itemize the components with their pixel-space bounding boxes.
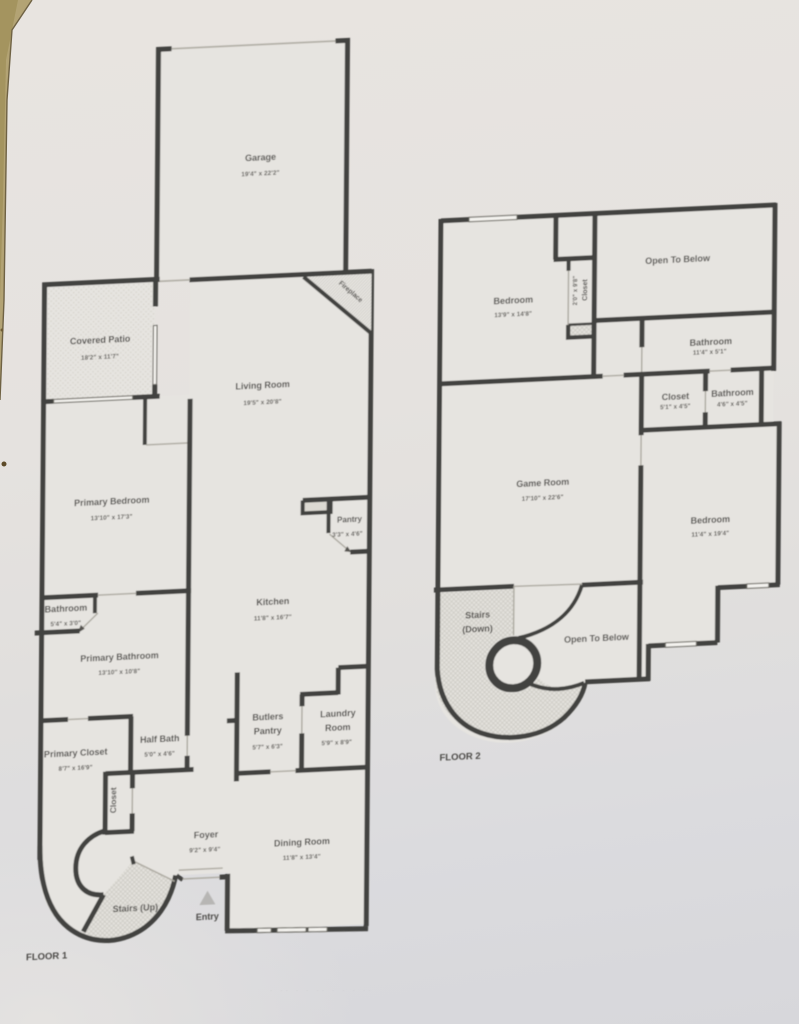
svg-text:Bedroom: Bedroom — [691, 514, 731, 526]
svg-text:Pantry: Pantry — [254, 725, 282, 736]
svg-text:9'2" x 9'4": 9'2" x 9'4" — [189, 846, 220, 854]
svg-text:2'0" x 9'8": 2'0" x 9'8" — [573, 275, 579, 305]
svg-text:4'6" x 4'5": 4'6" x 4'5" — [717, 400, 748, 408]
svg-text:5'0" x 4'6": 5'0" x 4'6" — [144, 750, 175, 758]
svg-text:5'4" x 3'0": 5'4" x 3'0" — [50, 620, 81, 628]
svg-text:Stairs: Stairs — [465, 609, 490, 620]
svg-text:3'3" x 4'6": 3'3" x 4'6" — [332, 531, 363, 539]
svg-text:Half Bath: Half Bath — [140, 733, 180, 745]
svg-text:FLOOR 1: FLOOR 1 — [26, 950, 68, 963]
svg-text:Entry: Entry — [196, 911, 219, 922]
svg-text:Closet: Closet — [662, 391, 690, 402]
svg-text:5'1" x 4'5": 5'1" x 4'5" — [660, 403, 691, 411]
svg-text:Bedroom: Bedroom — [494, 295, 534, 307]
svg-text:Butlers: Butlers — [252, 711, 283, 722]
svg-text:Garage: Garage — [245, 152, 276, 163]
svg-text:Closet: Closet — [108, 787, 118, 814]
svg-text:Bathroom: Bathroom — [690, 336, 733, 348]
svg-text:Foyer: Foyer — [194, 829, 219, 840]
svg-text:- -- - - -- - - - --: - -- - - -- - - - -- — [270, 988, 374, 995]
svg-text:(Down): (Down) — [462, 623, 493, 634]
svg-text:Closet: Closet — [582, 278, 589, 300]
svg-text:FLOOR 2: FLOOR 2 — [439, 751, 480, 764]
svg-text:5'9" x 8'9": 5'9" x 8'9" — [321, 739, 352, 747]
svg-text:Kitchen: Kitchen — [256, 596, 289, 608]
svg-text:Room: Room — [325, 722, 351, 733]
svg-text:Bathroom: Bathroom — [711, 387, 754, 399]
svg-text:Laundry: Laundry — [320, 708, 356, 720]
svg-text:Bathroom: Bathroom — [45, 603, 88, 615]
svg-text:5'7" x 6'3": 5'7" x 6'3" — [252, 743, 283, 751]
svg-text:Pantry: Pantry — [337, 515, 363, 525]
